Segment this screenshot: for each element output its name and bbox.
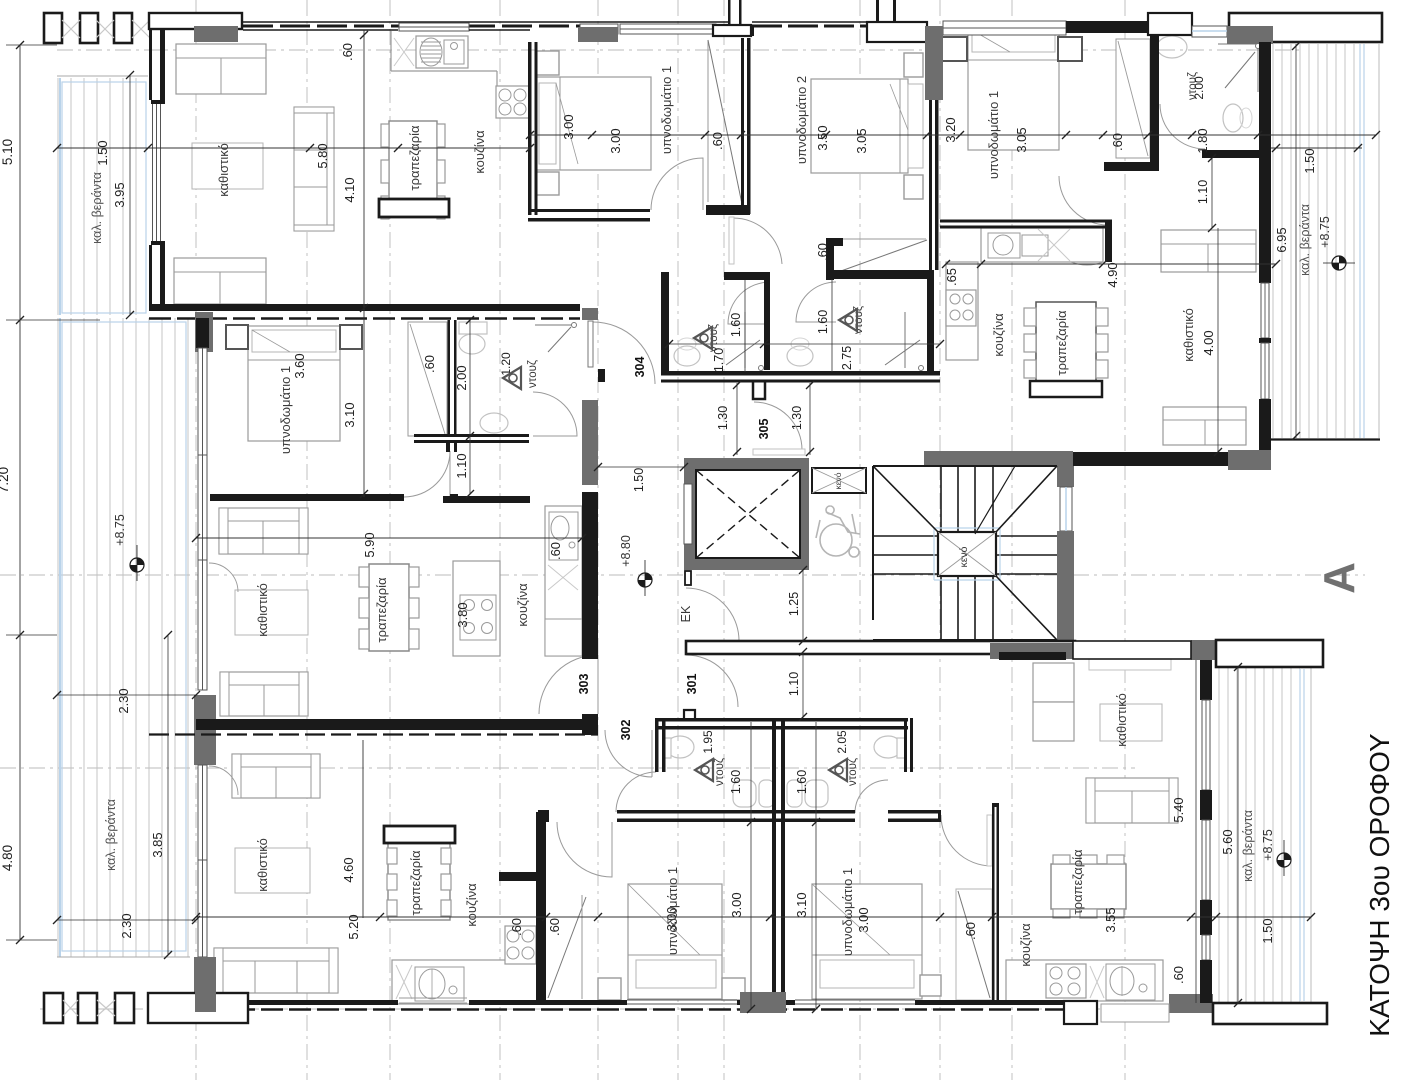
svg-text:.60: .60 <box>1171 966 1186 984</box>
svg-text:4.60: 4.60 <box>341 857 356 882</box>
svg-text:3.20: 3.20 <box>943 117 958 142</box>
svg-text:1.25: 1.25 <box>787 592 801 616</box>
svg-text:EK: EK <box>679 605 693 622</box>
svg-text:3.05: 3.05 <box>1014 127 1029 152</box>
svg-text:κενό: κενό <box>958 546 970 567</box>
svg-text:3.00: 3.00 <box>856 907 871 932</box>
svg-text:2.30: 2.30 <box>119 913 134 938</box>
svg-text:υπνοδωμάτιο 1: υπνοδωμάτιο 1 <box>840 868 855 956</box>
svg-text:1.60: 1.60 <box>816 310 830 334</box>
svg-text:304: 304 <box>633 357 647 378</box>
svg-text:καθιστικό: καθιστικό <box>1181 308 1196 362</box>
svg-text:3.10: 3.10 <box>794 892 809 917</box>
svg-text:5.20: 5.20 <box>346 914 361 939</box>
svg-text:3.60: 3.60 <box>292 353 307 378</box>
svg-text:1.30: 1.30 <box>790 406 804 430</box>
svg-text:6.95: 6.95 <box>1274 227 1289 252</box>
svg-text:τραπεζαρία: τραπεζαρία <box>1054 310 1069 375</box>
svg-text:καθιστικό: καθιστικό <box>255 838 270 892</box>
svg-text:.60: .60 <box>963 922 978 940</box>
svg-text:.60: .60 <box>710 132 725 150</box>
svg-text:2.05: 2.05 <box>835 730 849 754</box>
svg-text:305: 305 <box>757 419 771 440</box>
svg-text:.60: .60 <box>1110 133 1125 151</box>
svg-text:5.80: 5.80 <box>315 143 330 168</box>
svg-text:.60: .60 <box>548 542 563 560</box>
svg-text:1.80: 1.80 <box>1195 128 1210 153</box>
svg-text:1.50: 1.50 <box>1302 148 1317 173</box>
svg-text:3.00: 3.00 <box>608 128 623 153</box>
svg-text:υπνοδωμάτιο 2: υπνοδωμάτιο 2 <box>794 76 809 164</box>
svg-text:1.95: 1.95 <box>701 730 715 754</box>
svg-text:ντουζ: ντουζ <box>527 360 539 388</box>
svg-text:κουζίνα: κουζίνα <box>515 583 530 627</box>
svg-text:ντουζ: ντουζ <box>714 758 726 786</box>
svg-text:+8.75: +8.75 <box>1261 829 1275 861</box>
svg-text:5.10: 5.10 <box>0 139 15 165</box>
svg-text:3.50: 3.50 <box>815 125 830 150</box>
svg-text:καλ. βεράντα: καλ. βεράντα <box>90 172 104 244</box>
svg-text:3.95: 3.95 <box>112 182 127 207</box>
svg-text:5.90: 5.90 <box>362 532 377 557</box>
svg-text:1.60: 1.60 <box>729 313 743 337</box>
svg-text:1.60: 1.60 <box>729 770 743 794</box>
svg-text:1.50: 1.50 <box>1260 918 1275 943</box>
svg-text:1.60: 1.60 <box>795 770 809 794</box>
svg-text:υπνοδωμάτιο 1: υπνοδωμάτιο 1 <box>986 91 1001 179</box>
svg-text:5.60: 5.60 <box>1220 829 1235 854</box>
svg-text:τραπεζαρία: τραπεζαρία <box>407 125 422 190</box>
svg-text:τραπεζαρία: τραπεζαρία <box>374 577 389 642</box>
svg-text:4.80: 4.80 <box>0 845 15 871</box>
svg-text:301: 301 <box>685 674 699 695</box>
svg-text:κουζίνα: κουζίνα <box>472 130 487 174</box>
svg-text:καθιστικό: καθιστικό <box>1114 693 1129 747</box>
svg-text:1.30: 1.30 <box>716 406 730 430</box>
svg-text:1.50: 1.50 <box>95 140 110 165</box>
svg-text:2.30: 2.30 <box>116 688 131 713</box>
svg-text:1.10: 1.10 <box>454 453 469 478</box>
svg-text:5.40: 5.40 <box>1171 797 1186 822</box>
svg-text:2.00: 2.00 <box>1192 76 1206 100</box>
svg-text:1.10: 1.10 <box>1196 180 1210 204</box>
svg-text:κουζίνα: κουζίνα <box>1018 923 1033 967</box>
svg-text:κενό: κενό <box>833 472 843 489</box>
svg-text:4.00: 4.00 <box>1201 330 1216 355</box>
svg-text:.60: .60 <box>509 918 524 936</box>
svg-text:2.75: 2.75 <box>840 346 854 370</box>
svg-text:7.20: 7.20 <box>0 467 11 493</box>
svg-text:καλ. βεράντα: καλ. βεράντα <box>1298 204 1312 276</box>
svg-text:.60: .60 <box>547 918 562 936</box>
svg-text:3.00: 3.00 <box>561 114 576 139</box>
svg-text:τραπεζαρία: τραπεζαρία <box>1070 849 1085 914</box>
svg-text:302: 302 <box>619 720 633 741</box>
svg-text:4.90: 4.90 <box>1105 262 1120 287</box>
svg-text:κουζίνα: κουζίνα <box>464 883 479 927</box>
svg-text:A: A <box>1315 562 1364 594</box>
svg-text:.60: .60 <box>422 355 437 373</box>
svg-text:καλ. βεράντα: καλ. βεράντα <box>1241 810 1255 882</box>
svg-text:υπνοδωμάτιο 1: υπνοδωμάτιο 1 <box>665 867 680 955</box>
svg-text:3.55: 3.55 <box>1103 907 1118 932</box>
svg-text:.60: .60 <box>815 243 830 261</box>
svg-text:3.80: 3.80 <box>455 602 470 627</box>
svg-text:υπνοδωμάτιο 1: υπνοδωμάτιο 1 <box>659 66 674 154</box>
svg-text:+8.80: +8.80 <box>619 535 633 567</box>
svg-text:ντουζ: ντουζ <box>847 758 859 786</box>
svg-text:1.50: 1.50 <box>632 468 646 492</box>
svg-text:τραπεζαρία: τραπεζαρία <box>408 850 423 915</box>
svg-text:3.10: 3.10 <box>342 402 357 427</box>
svg-text:.65: .65 <box>944 268 959 286</box>
svg-text:3.00: 3.00 <box>729 892 744 917</box>
svg-text:καθιστικό: καθιστικό <box>255 583 270 637</box>
svg-text:κουζίνα: κουζίνα <box>991 313 1006 357</box>
svg-text:ΚΑΤΟΨΗ 3ου ΟΡΟΦΟΥ: ΚΑΤΟΨΗ 3ου ΟΡΟΦΟΥ <box>1364 733 1395 1037</box>
svg-text:καθιστικό: καθιστικό <box>216 143 231 197</box>
svg-text:303: 303 <box>577 674 591 695</box>
svg-text:υπνοδωμάτιο 1: υπνοδωμάτιο 1 <box>278 366 293 454</box>
svg-text:+8.75: +8.75 <box>113 514 127 546</box>
svg-text:3.85: 3.85 <box>150 832 165 857</box>
svg-text:.60: .60 <box>340 43 355 61</box>
svg-text:3.05: 3.05 <box>854 128 869 153</box>
svg-text:2.00: 2.00 <box>454 365 469 390</box>
svg-text:+8.75: +8.75 <box>1318 216 1332 248</box>
svg-text:1.10: 1.10 <box>787 672 801 696</box>
svg-text:καλ. βεράντα: καλ. βεράντα <box>104 799 118 871</box>
svg-text:4.10: 4.10 <box>342 177 357 202</box>
